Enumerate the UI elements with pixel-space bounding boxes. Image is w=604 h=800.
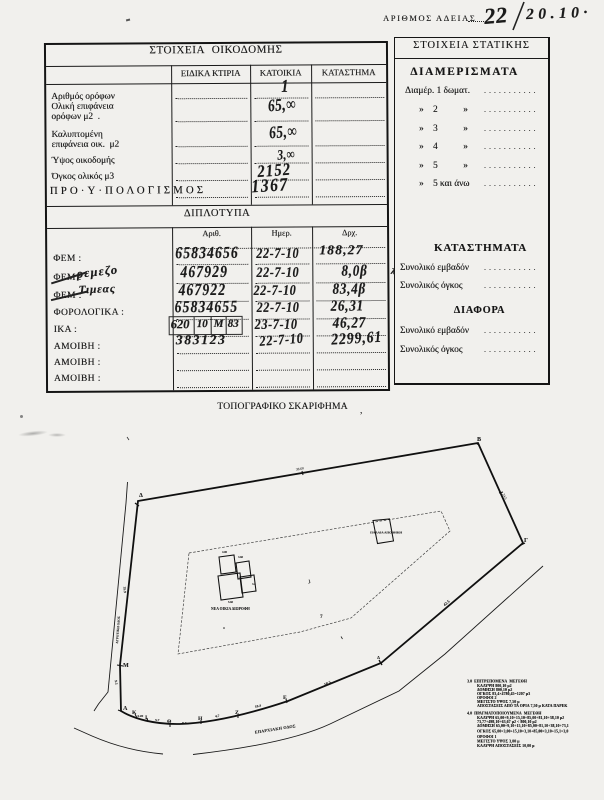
svg-text:Μ: Μ [123, 663, 129, 669]
svg-text:ΔΟΜΗΣΗ 65,00+9,10+15,10+85,00+: ΔΟΜΗΣΗ 65,00+9,10+15,10+85,00+81,10+38,1… [477, 724, 569, 728]
svg-text:ΑΠΟΣΤΑΣΕΙΣ ΑΠΟ ΤΑ ΟΡΙΑ 7,50 μ: ΑΠΟΣΤΑΣΕΙΣ ΑΠΟ ΤΑ ΟΡΙΑ 7,50 μ ΚΑΤΑ ΠΑΡΕΚ [477, 704, 567, 708]
svg-text:35.9: 35.9 [122, 586, 127, 593]
svg-text:4.20: 4.20 [137, 714, 143, 718]
svg-text:Β: Β [477, 437, 481, 443]
svg-text:10.4: 10.4 [254, 704, 261, 709]
svg-text:ΟΓΚΟΣ 65,00×3,00+15,10×3,10+85: ΟΓΚΟΣ 65,00×3,00+15,10×3,10+85,00×3,10+1… [477, 730, 568, 734]
svg-text:3.0 ΕΠΙΤΡΕΠΟΜΕΝΑ ΜΕΓΕΘΗ: 3.0 ΕΠΙΤΡΕΠΟΜΕΝΑ ΜΕΓΕΘΗ [467, 680, 527, 684]
svg-text:5.60: 5.60 [228, 601, 233, 604]
svg-text:Δ: Δ [377, 655, 380, 660]
svg-text:9.5: 9.5 [114, 680, 119, 685]
svg-text:ΚΑΛΥΨΗ ΑΠΟΣΤΑΣΕΙΣ 10,00 μ: ΚΑΛΥΨΗ ΑΠΟΣΤΑΣΕΙΣ 10,00 μ [477, 744, 535, 748]
svg-text:4.00: 4.00 [222, 551, 227, 554]
svg-text:ΑΓΡΟΤΙΚΗ ΟΔΟΣ: ΑΓΡΟΤΙΚΗ ΟΔΟΣ [115, 616, 121, 644]
svg-text:4.0 ΠΡΑΓΜΑΤΟΠΟΙΟΥΜΕΝΑ ΜΕΓΕΘΗ: 4.0 ΠΡΑΓΜΑΤΟΠΟΙΟΥΜΕΝΑ ΜΕΓΕΘΗ [467, 712, 541, 716]
svg-text:ΝΕΑ ΟΙΚΙΑ ΔΙΩΡΟΦΗ: ΝΕΑ ΟΙΚΙΑ ΔΙΩΡΟΦΗ [211, 607, 250, 611]
svg-text:50.5: 50.5 [323, 679, 331, 686]
svg-text:ΕΠΑΡΧΙΑΚΗ ΟΔΟΣ: ΕΠΑΡΧΙΑΚΗ ΟΔΟΣ [254, 723, 296, 734]
svg-text:Α: Α [123, 706, 128, 712]
svg-text:3.8: 3.8 [252, 583, 256, 586]
svg-text:38.60: 38.60 [296, 466, 305, 471]
svg-text:Δ: Δ [139, 493, 143, 499]
svg-text:3.60: 3.60 [238, 556, 243, 559]
svg-text:ΟΡΟΦΟΙ 1: ΟΡΟΦΟΙ 1 [477, 735, 496, 739]
svg-text:9.4: 9.4 [182, 721, 187, 725]
svg-text:7: 7 [320, 615, 323, 620]
svg-text:ΜΕΓΙΣΤΟ ΥΨΟΣ 3,00 μ: ΜΕΓΙΣΤΟ ΥΨΟΣ 3,00 μ [477, 740, 520, 744]
svg-text:5.7: 5.7 [155, 718, 160, 722]
svg-text:ΠΑΛΑΙΑ ΑΠΟΘΗΚΗ: ΠΑΛΑΙΑ ΑΠΟΘΗΚΗ [370, 531, 402, 535]
svg-text:4.7: 4.7 [215, 714, 220, 719]
svg-text:Ι: Ι [145, 715, 147, 721]
